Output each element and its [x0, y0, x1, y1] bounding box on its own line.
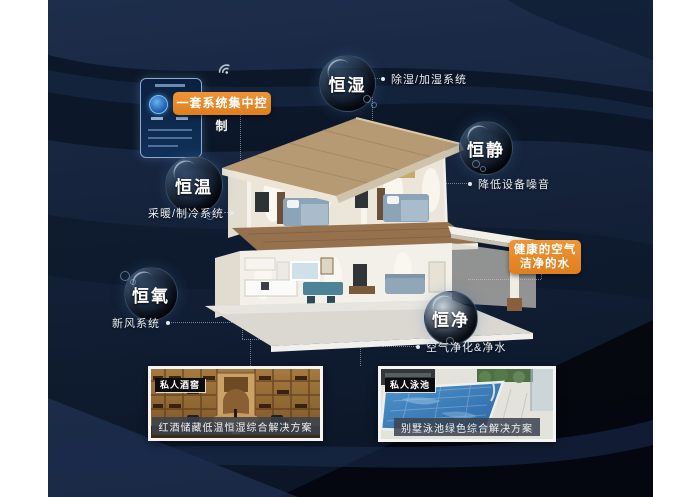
healthy-air-line: 健康的空气 [509, 243, 581, 257]
bullet-icon [230, 211, 234, 215]
mini-bubble-decoration [371, 102, 377, 108]
bubble-label: 恒温 [175, 173, 213, 198]
mini-bubble-decoration [120, 271, 130, 281]
annotation-text: 除湿/加湿系统 [391, 71, 467, 87]
annotation-text: 降低设备噪音 [478, 176, 550, 192]
wifi-icon [216, 56, 240, 78]
bubble-label: 恒湿 [329, 71, 367, 96]
card-tag: 私人酒窖 [155, 378, 205, 392]
infographic-content: 一套系统集中控制 健康的空气 洁净的水 恒湿 恒静 恒温 恒氧 恒净 [48, 0, 653, 497]
connector-line [240, 114, 241, 166]
card-tag: 私人泳池 [385, 378, 435, 392]
mini-bubble-decoration [480, 166, 486, 172]
annotation-text: 新风系统 [112, 315, 160, 331]
card-caption: 别墅泳池绿色综合解决方案 [394, 418, 540, 436]
connector-line [382, 308, 383, 346]
annotation-text: 采暖/制冷系统 [148, 205, 224, 221]
bubble-label: 恒静 [467, 136, 505, 161]
phone-text-row [148, 129, 192, 131]
bullet-icon [381, 77, 385, 81]
annotation-text: 空气净化&净水 [426, 339, 506, 355]
connector-line [468, 279, 541, 280]
infographic-canvas: 一套系统集中控制 健康的空气 洁净的水 恒湿 恒静 恒温 恒氧 恒净 [0, 0, 700, 497]
connector-line [250, 339, 251, 366]
bubble-label: 恒氧 [132, 282, 170, 307]
phone-text-row [148, 145, 178, 147]
connector-line [242, 339, 307, 340]
mini-bubble-decoration [363, 95, 371, 103]
connector-line [307, 312, 308, 339]
bullet-icon [468, 182, 472, 186]
connector-line [168, 322, 242, 323]
connector-line [434, 183, 467, 184]
control-panel-device [140, 78, 202, 158]
phone-screen-header [155, 84, 185, 87]
feature-bubble-quiet: 恒静 [459, 121, 513, 175]
mini-bubble-decoration [130, 279, 136, 285]
annotation-heating-cooling: 采暖/制冷系统 [148, 205, 234, 221]
bullet-icon [166, 321, 170, 325]
clean-water-line: 洁净的水 [509, 257, 581, 271]
phone-text-row [148, 137, 192, 139]
phone-dial-icon [149, 95, 168, 114]
bullet-icon [416, 345, 420, 349]
pool-card: 私人泳池 别墅泳池绿色综合解决方案 [378, 366, 556, 442]
phone-value-bar [151, 117, 163, 120]
annotation-noise: 降低设备噪音 [468, 176, 550, 192]
healthy-air-water-tag: 健康的空气 洁净的水 [509, 240, 581, 274]
bubble-label: 恒净 [432, 306, 470, 331]
annotation-purification: 空气净化&净水 [416, 339, 506, 355]
card-caption: 红酒储藏低温恒湿综合解决方案 [152, 417, 320, 435]
connector-line [242, 322, 243, 339]
feature-bubble-humidity: 恒湿 [319, 55, 376, 112]
connector-line [382, 346, 416, 347]
annotation-dehumidify: 除湿/加湿系统 [381, 71, 467, 87]
central-control-tag: 一套系统集中控制 [173, 92, 271, 115]
connector-line [360, 305, 361, 366]
feature-bubble-oxygen: 恒氧 [124, 267, 178, 321]
phone-value-bar [176, 117, 188, 120]
annotation-fresh-air: 新风系统 [112, 315, 170, 331]
mini-bubble-decoration [472, 160, 480, 168]
wine-cellar-card: 私人酒窖 红酒储藏低温恒湿综合解决方案 [148, 366, 323, 441]
